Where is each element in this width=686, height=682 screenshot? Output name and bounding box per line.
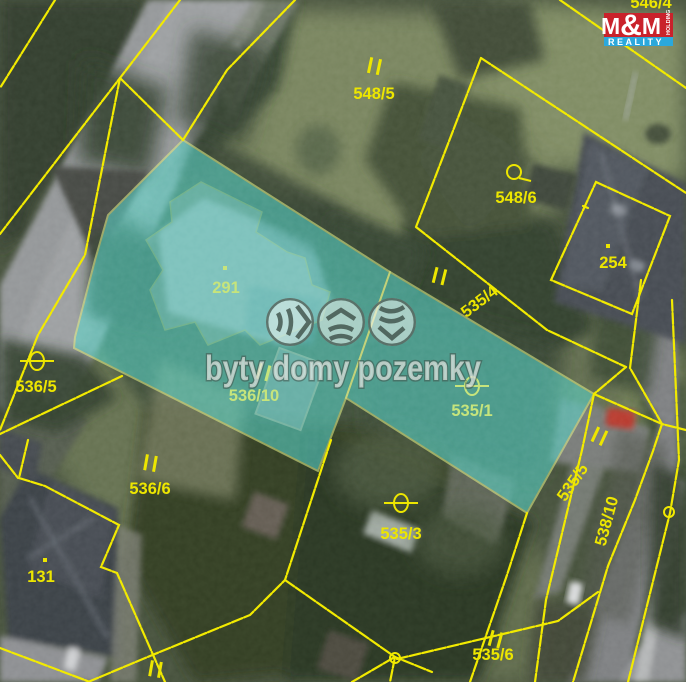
svg-text:536/10: 536/10 bbox=[229, 387, 279, 405]
svg-text:HOLDING: HOLDING bbox=[666, 10, 672, 35]
svg-text:REALITY: REALITY bbox=[608, 37, 664, 47]
svg-text:536/6: 536/6 bbox=[129, 480, 170, 498]
svg-text:535/6: 535/6 bbox=[472, 646, 513, 664]
svg-text:548/5: 548/5 bbox=[353, 85, 394, 103]
svg-text:291: 291 bbox=[212, 279, 240, 297]
svg-text:254: 254 bbox=[599, 254, 627, 272]
svg-text:535/3: 535/3 bbox=[380, 525, 421, 543]
svg-text:536/5: 536/5 bbox=[15, 378, 56, 396]
svg-text:548/6: 548/6 bbox=[495, 189, 536, 207]
svg-text:535/1: 535/1 bbox=[451, 402, 492, 420]
svg-text:131: 131 bbox=[27, 568, 55, 586]
svg-text:byty domy pozemky: byty domy pozemky bbox=[205, 349, 481, 388]
